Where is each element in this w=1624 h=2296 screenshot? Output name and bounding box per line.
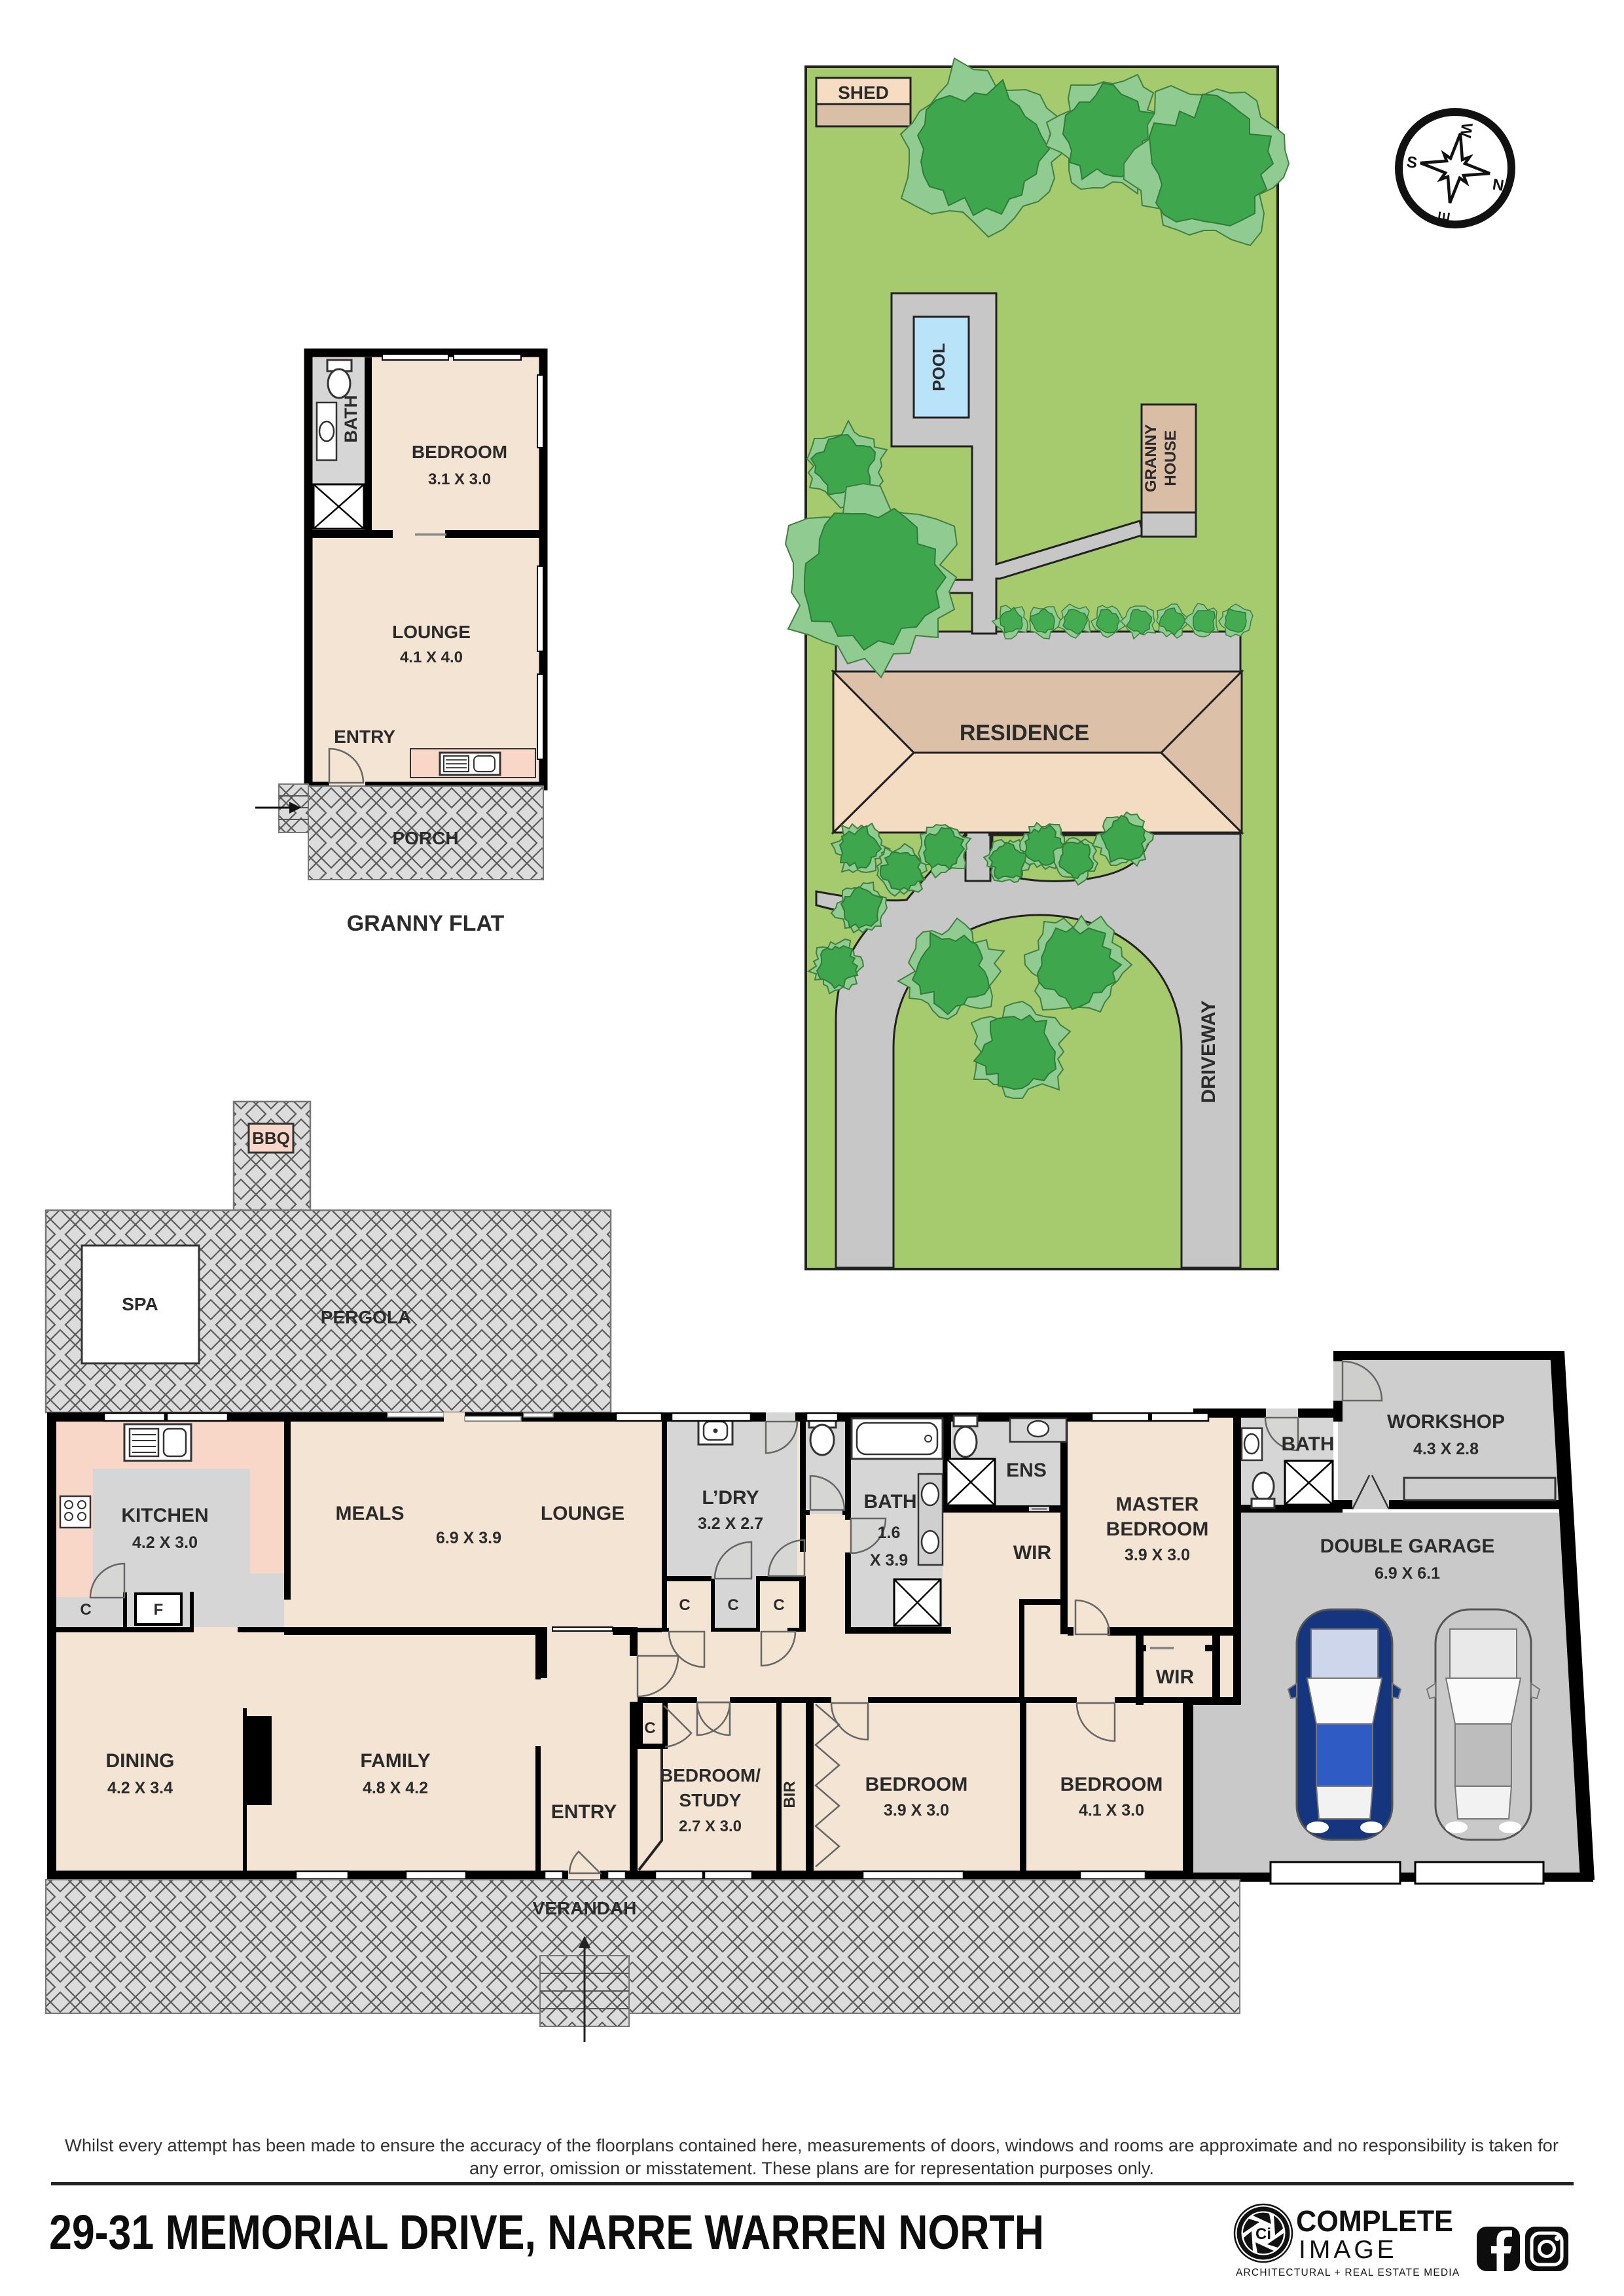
svg-text:KITCHEN: KITCHEN [121, 1505, 208, 1526]
svg-text:4.2 X 3.0: 4.2 X 3.0 [132, 1534, 198, 1552]
svg-text:DINING: DINING [106, 1750, 175, 1772]
svg-text:SPA: SPA [122, 1294, 158, 1314]
svg-text:PORCH: PORCH [392, 828, 458, 848]
svg-text:MASTER: MASTER [1116, 1494, 1199, 1515]
svg-text:4.1 X 3.0: 4.1 X 3.0 [1079, 1801, 1144, 1820]
svg-text:ARCHITECTURAL + REAL ESTATE ME: ARCHITECTURAL + REAL ESTATE MEDIA [1236, 2267, 1460, 2278]
svg-text:MEALS: MEALS [336, 1503, 405, 1524]
svg-text:BATH: BATH [341, 395, 361, 443]
svg-text:LOUNGE: LOUNGE [392, 622, 471, 642]
svg-text:RESIDENCE: RESIDENCE [960, 721, 1089, 745]
svg-text:C: C [644, 1719, 655, 1737]
svg-text:STUDY: STUDY [679, 1790, 742, 1810]
svg-text:any error, omission or misstat: any error, omission or misstatement. The… [469, 2159, 1154, 2178]
svg-text:BEDROOM/: BEDROOM/ [660, 1765, 761, 1785]
svg-text:PERGOLA: PERGOLA [321, 1307, 411, 1327]
svg-text:3.1 X 3.0: 3.1 X 3.0 [428, 471, 491, 488]
svg-text:4.8 X 4.2: 4.8 X 4.2 [363, 1779, 428, 1797]
svg-text:IMAGE: IMAGE [1299, 2236, 1398, 2264]
svg-text:BATH: BATH [863, 1491, 916, 1513]
svg-text:HOUSE: HOUSE [1162, 430, 1180, 486]
svg-text:SHED: SHED [838, 82, 889, 103]
svg-text:C: C [679, 1596, 690, 1614]
svg-text:29-31 MEMORIAL DRIVE, NARRE WA: 29-31 MEMORIAL DRIVE, NARRE WARREN NORTH [49, 2205, 1044, 2259]
svg-text:F: F [154, 1601, 164, 1619]
svg-text:BEDROOM: BEDROOM [865, 1774, 968, 1795]
svg-text:W: W [1456, 122, 1475, 139]
svg-text:3.9 X 3.0: 3.9 X 3.0 [1125, 1546, 1190, 1564]
svg-text:LOUNGE: LOUNGE [541, 1503, 624, 1524]
svg-text:X 3.9: X 3.9 [870, 1551, 908, 1570]
svg-text:BATH: BATH [1281, 1433, 1334, 1455]
svg-text:6.9 X 3.9: 6.9 X 3.9 [436, 1529, 501, 1547]
svg-text:4.2 X 3.4: 4.2 X 3.4 [107, 1779, 173, 1797]
svg-text:Ci: Ci [1255, 2225, 1271, 2243]
svg-text:ENTRY: ENTRY [334, 726, 395, 747]
svg-text:C: C [80, 1601, 91, 1619]
svg-text:C: C [727, 1596, 738, 1614]
svg-text:WIR: WIR [1013, 1542, 1052, 1564]
svg-text:GRANNY: GRANNY [1142, 424, 1160, 492]
svg-text:ENTRY: ENTRY [551, 1801, 617, 1823]
svg-text:DOUBLE GARAGE: DOUBLE GARAGE [1320, 1535, 1495, 1557]
svg-text:3.9 X 3.0: 3.9 X 3.0 [884, 1801, 949, 1820]
svg-text:Whilst every attempt has been: Whilst every attempt has been made to en… [65, 2136, 1559, 2155]
svg-text:BIR: BIR [781, 1781, 799, 1808]
svg-text:4.3 X 2.8: 4.3 X 2.8 [1413, 1440, 1479, 1458]
svg-text:VERANDAH: VERANDAH [533, 1898, 637, 1918]
svg-text:COMPLETE: COMPLETE [1296, 2204, 1453, 2238]
svg-text:POOL: POOL [929, 343, 948, 391]
svg-text:WORKSHOP: WORKSHOP [1387, 1411, 1505, 1433]
svg-text:WIR: WIR [1156, 1666, 1195, 1688]
svg-text:FAMILY: FAMILY [360, 1750, 430, 1772]
svg-text:4.1 X 4.0: 4.1 X 4.0 [400, 649, 463, 666]
svg-text:C: C [773, 1596, 784, 1614]
svg-text:2.7 X 3.0: 2.7 X 3.0 [679, 1818, 742, 1835]
svg-text:ENS: ENS [1006, 1460, 1047, 1481]
svg-text:BEDROOM: BEDROOM [412, 442, 507, 462]
svg-text:L’DRY: L’DRY [702, 1487, 759, 1509]
svg-text:BEDROOM: BEDROOM [1106, 1518, 1209, 1540]
svg-text:BBQ: BBQ [252, 1128, 290, 1148]
svg-text:1.6: 1.6 [878, 1524, 901, 1542]
svg-text:DRIVEWAY: DRIVEWAY [1198, 1000, 1219, 1103]
svg-text:BEDROOM: BEDROOM [1060, 1774, 1163, 1795]
svg-text:GRANNY FLAT: GRANNY FLAT [347, 911, 505, 936]
svg-text:6.9 X 6.1: 6.9 X 6.1 [1375, 1564, 1440, 1583]
svg-text:3.2 X 2.7: 3.2 X 2.7 [698, 1515, 763, 1533]
